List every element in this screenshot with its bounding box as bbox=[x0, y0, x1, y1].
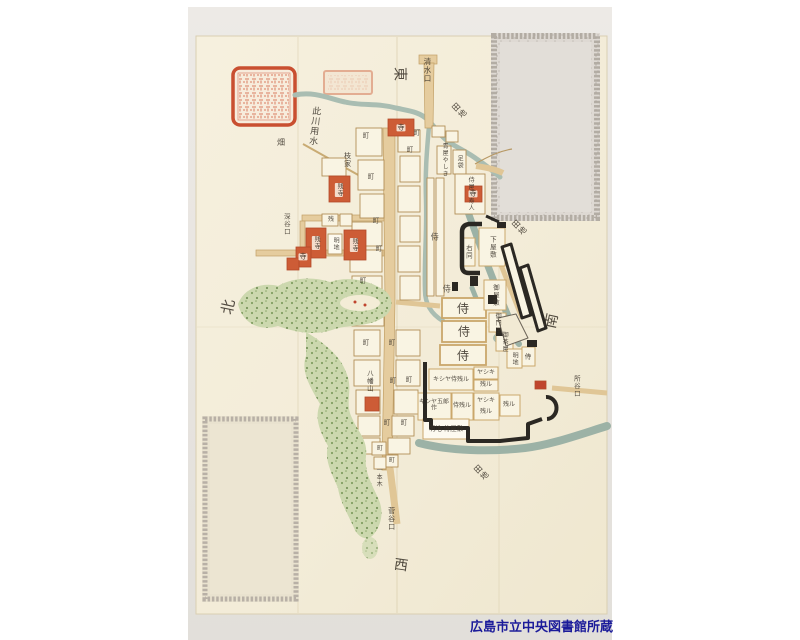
hachiman-shrine bbox=[365, 397, 379, 411]
digitized-map-photo: 東 西 北 南 清水口 深谷口 菅谷口 所谷口 此川用水 畑 枝家 田地 田地 … bbox=[0, 0, 800, 640]
gate-mark bbox=[535, 381, 546, 389]
backing-patch-bottom-left bbox=[202, 416, 299, 602]
backing-patch-top-right bbox=[491, 33, 600, 221]
faded-stamp bbox=[324, 71, 372, 94]
library-seal bbox=[233, 68, 295, 125]
map-artwork bbox=[0, 0, 800, 640]
library-credit: 広島市立中央図書館所蔵 bbox=[470, 616, 613, 635]
